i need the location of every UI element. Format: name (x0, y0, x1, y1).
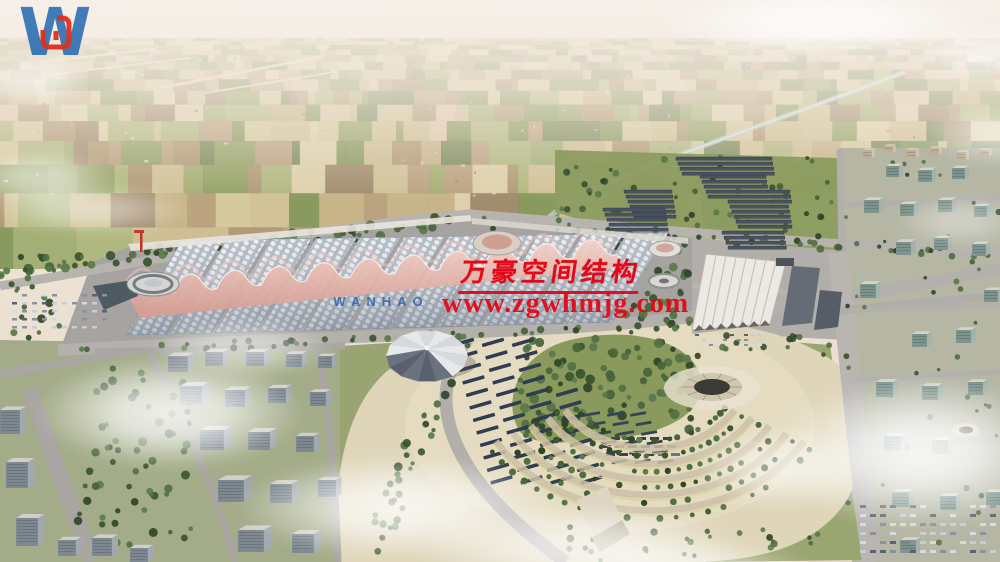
drop-off-oval (649, 274, 679, 288)
round-hall-b (649, 241, 681, 257)
aerial-render-stage: W WANHAO 万豪空间结构 www.zgwhmjg.com (0, 0, 1000, 562)
small-cone (952, 423, 980, 437)
funnel-pavilion (682, 373, 742, 401)
round-hall-a (473, 231, 521, 255)
aerial-render (0, 0, 1000, 562)
red-sculpture (140, 230, 143, 252)
